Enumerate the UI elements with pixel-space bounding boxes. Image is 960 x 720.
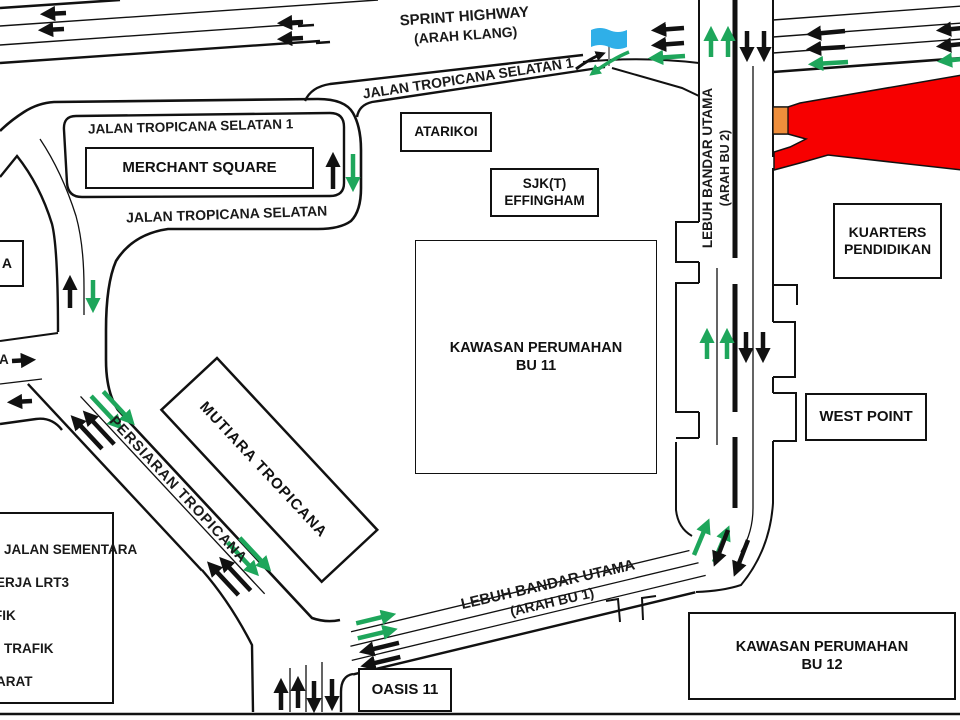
persiaran-south-edge (202, 570, 253, 712)
legend-item: ARAT (0, 674, 33, 689)
kuarters-line1: KUARTERS (849, 224, 927, 242)
lebuh-bandar-utama-2-road (676, 0, 797, 592)
west-point-box: WEST POINT (805, 393, 927, 441)
west-point-label: WEST POINT (819, 408, 912, 427)
legend-item: FIK (0, 608, 16, 623)
west-side-arrows (12, 154, 353, 402)
oasis-11-box: OASIS 11 (358, 668, 452, 712)
bu12-line1: KAWASAN PERUMAHAN (736, 638, 908, 656)
oasis-11-label: OASIS 11 (372, 681, 439, 700)
edge-partial-label-top: A (2, 255, 12, 273)
sjkt-line2: EFFINGHAM (504, 193, 584, 210)
lbu2-line2: (ARAH BU 2) (717, 73, 733, 263)
sjkt-effingham-box: SJK(T) EFFINGHAM (490, 168, 599, 217)
bu11-line2: BU 11 (516, 357, 556, 375)
south-stub-road (281, 662, 353, 712)
kawasan-bu11-box: KAWASAN PERUMAHAN BU 11 (415, 240, 657, 474)
edge-partial-box-top: A (0, 240, 24, 287)
kuarters-pendidikan-box: KUARTERS PENDIDIKAN (833, 203, 942, 279)
legend-item: TRAFIK (4, 641, 54, 656)
merchant-square-box: MERCHANT SQUARE (85, 147, 314, 189)
atarikoi-box: ATARIKOI (400, 112, 492, 152)
atarikoi-label: ATARIKOI (414, 124, 477, 141)
kuarters-line2: PENDIDIKAN (844, 241, 931, 259)
legend-item: ERJA LRT3 (0, 575, 69, 590)
merchant-square-label: MERCHANT SQUARE (122, 159, 276, 178)
bu11-line1: KAWASAN PERUMAHAN (450, 339, 622, 357)
lbu1-south-stubs (606, 596, 656, 622)
road-closure-red-shape (773, 75, 960, 170)
sjkt-line1: SJK(T) (523, 176, 567, 193)
traffic-diversion-map: SPRINT HIGHWAY (ARAH KLANG) JALAN TROPIC… (0, 0, 960, 720)
kawasan-bu12-box: KAWASAN PERUMAHAN BU 12 (688, 612, 956, 700)
sprint-highway-lines-east (773, 6, 960, 72)
label-lebuh-bandar-utama-2: LEBUH BANDAR UTAMA (ARAH BU 2) (699, 73, 735, 263)
bend-arrows (694, 524, 748, 571)
works-orange-marker (773, 107, 788, 134)
legend-item: JALAN SEMENTARA (4, 542, 137, 557)
blue-flag-icon (591, 28, 627, 49)
closure-shapes (773, 75, 960, 170)
edge-partial-label-mid: A (0, 352, 9, 367)
lbu2-line1: LEBUH BANDAR UTAMA (699, 73, 717, 263)
bu12-line2: BU 12 (801, 656, 842, 674)
